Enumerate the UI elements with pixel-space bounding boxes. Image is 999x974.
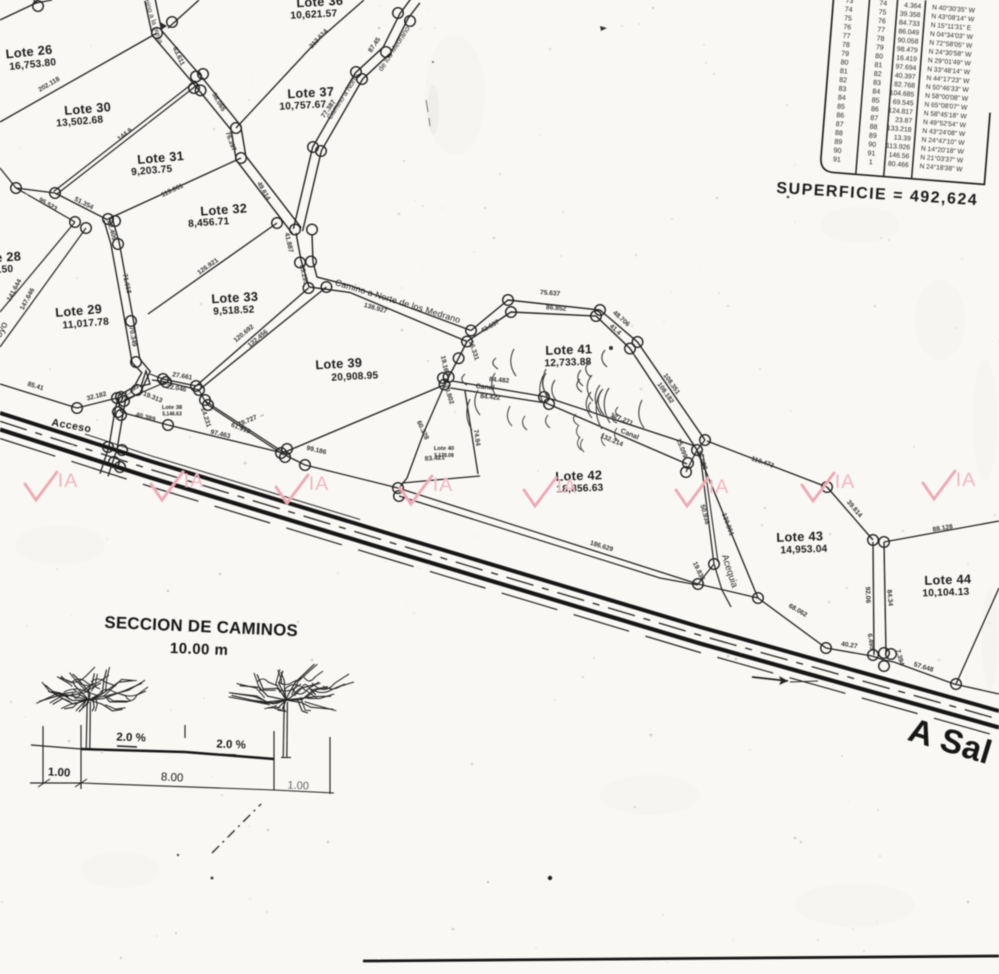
svg-text:68.062: 68.062 — [787, 603, 808, 619]
svg-text:49.614: 49.614 — [255, 181, 271, 202]
svg-text:Lote 38: Lote 38 — [162, 405, 183, 411]
svg-text:79.727 →: 79.727 → — [237, 411, 266, 429]
svg-text:77: 77 — [877, 27, 885, 35]
svg-text:88: 88 — [835, 130, 843, 138]
svg-text:75: 75 — [878, 9, 886, 17]
svg-text:71.018: 71.018 — [121, 273, 132, 295]
svg-text:13.39: 13.39 — [893, 134, 911, 142]
svg-text:40.389: 40.389 — [135, 412, 157, 424]
svg-text:IA: IA — [309, 473, 329, 495]
svg-text:82.768: 82.768 — [894, 81, 915, 90]
svg-text:86: 86 — [871, 106, 879, 114]
svg-text:8,456.71: 8,456.71 — [188, 216, 230, 230]
svg-text:74: 74 — [844, 6, 852, 14]
svg-text:19.313: 19.313 — [142, 391, 164, 405]
svg-text:110.473: 110.473 — [750, 455, 775, 469]
svg-text:97.694: 97.694 — [895, 64, 916, 73]
svg-text:141.644: 141.644 — [6, 278, 24, 303]
svg-text:86: 86 — [836, 112, 844, 120]
svg-text:88: 88 — [869, 124, 877, 132]
svg-text:84: 84 — [838, 95, 846, 103]
svg-text:5,146.63: 5,146.63 — [162, 412, 182, 418]
svg-text:6.495: 6.495 — [866, 633, 876, 651]
svg-text:84: 84 — [872, 88, 880, 96]
svg-text:81: 81 — [840, 68, 848, 76]
svg-text:1: 1 — [869, 159, 874, 166]
svg-text:IA: IA — [709, 476, 729, 498]
svg-text:126.921: 126.921 — [196, 257, 220, 277]
svg-text:130.861: 130.861 — [720, 512, 735, 537]
svg-text:212.614: 212.614 — [308, 28, 330, 50]
svg-text:16.419: 16.419 — [896, 55, 917, 64]
svg-text:186.629: 186.629 — [589, 540, 614, 554]
svg-text:85: 85 — [837, 103, 845, 111]
svg-text:Lote 40: Lote 40 — [434, 446, 454, 452]
svg-text:39.358: 39.358 — [899, 11, 920, 20]
svg-text:83: 83 — [838, 86, 846, 94]
svg-text:Acequia: Acequia — [719, 553, 740, 590]
svg-text:92.06: 92.06 — [864, 587, 872, 604]
svg-text:2.0 %: 2.0 % — [116, 731, 146, 744]
svg-text:104.685: 104.685 — [889, 90, 914, 99]
svg-text:86.049: 86.049 — [898, 28, 919, 37]
svg-text:IA: IA — [433, 474, 453, 496]
svg-text:20,908.95: 20,908.95 — [331, 370, 379, 383]
svg-text:97.463: 97.463 — [210, 429, 232, 440]
svg-text:80: 80 — [875, 53, 883, 61]
svg-text:84.34: 84.34 — [885, 589, 893, 606]
svg-text:76.397: 76.397 — [224, 131, 238, 153]
svg-text:Lote 41: Lote 41 — [545, 341, 592, 358]
svg-text:69.545: 69.545 — [892, 99, 913, 108]
svg-text:Camino a Norte de los Medrano: Camino a Norte de los Medrano — [334, 277, 462, 325]
svg-text:78: 78 — [842, 42, 850, 50]
svg-text:13,502.68: 13,502.68 — [56, 114, 104, 129]
svg-text:2.0 %: 2.0 % — [216, 738, 246, 751]
svg-text:98.479: 98.479 — [897, 46, 918, 55]
svg-text:80.466: 80.466 — [888, 161, 909, 170]
svg-text:Lote 43: Lote 43 — [776, 528, 823, 545]
svg-text:81: 81 — [874, 62, 882, 70]
svg-text:85.41: 85.41 — [27, 381, 45, 393]
svg-text:73: 73 — [845, 0, 853, 5]
svg-text:4.364: 4.364 — [904, 2, 922, 10]
svg-text:82: 82 — [874, 71, 882, 79]
svg-text:40.397: 40.397 — [895, 72, 916, 81]
svg-text:86.852: 86.852 — [546, 304, 567, 312]
svg-text:75: 75 — [844, 15, 852, 23]
svg-text:91: 91 — [867, 150, 875, 158]
svg-text:Lote 37: Lote 37 — [287, 84, 335, 101]
svg-text:16.331: 16.331 — [467, 340, 480, 362]
svg-text:27.661: 27.661 — [172, 371, 193, 381]
svg-text:87: 87 — [835, 121, 843, 129]
svg-text:80: 80 — [840, 59, 848, 67]
svg-text:22.046: 22.046 — [166, 383, 187, 393]
svg-text:90: 90 — [833, 147, 841, 155]
svg-text:84.422: 84.422 — [480, 393, 501, 402]
svg-text:84.733: 84.733 — [899, 19, 920, 28]
svg-text:74: 74 — [879, 0, 887, 8]
svg-text:15.099: 15.099 — [694, 450, 708, 472]
svg-text:133.218: 133.218 — [887, 125, 912, 134]
svg-text:IA: IA — [557, 476, 577, 498]
svg-text:16,766.50: 16,766.50 — [0, 264, 14, 278]
svg-text:12,733.88: 12,733.88 — [544, 357, 592, 370]
svg-text:9,203.75: 9,203.75 — [131, 164, 173, 179]
svg-text:8.00: 8.00 — [161, 771, 184, 784]
svg-text:95.523: 95.523 — [37, 197, 58, 213]
svg-text:87: 87 — [870, 115, 878, 123]
svg-text:IA: IA — [58, 470, 78, 492]
svg-text:89: 89 — [869, 132, 877, 140]
svg-text:15.099: 15.099 — [674, 438, 688, 460]
svg-text:124.817: 124.817 — [888, 107, 913, 116]
svg-text:51.354: 51.354 — [73, 196, 94, 212]
svg-text:10,757.67: 10,757.67 — [279, 99, 327, 112]
svg-text:1.00: 1.00 — [48, 766, 71, 779]
svg-text:146.56: 146.56 — [888, 152, 909, 161]
svg-text:79: 79 — [876, 44, 884, 52]
svg-text:78: 78 — [876, 35, 884, 43]
svg-text:82: 82 — [839, 77, 847, 85]
svg-text:Arroyo: Arroyo — [0, 320, 11, 352]
svg-text:25.295: 25.295 — [298, 264, 309, 286]
svg-text:88.128: 88.128 — [932, 523, 953, 533]
svg-text:57.648: 57.648 — [913, 661, 935, 674]
svg-text:40.27: 40.27 — [841, 641, 859, 651]
svg-text:IA: IA — [184, 470, 204, 492]
svg-text:77: 77 — [842, 33, 850, 41]
svg-text:1.00: 1.00 — [287, 779, 309, 792]
svg-text:19.836: 19.836 — [691, 561, 706, 583]
svg-text:14,953.04: 14,953.04 — [780, 544, 828, 557]
svg-text:99.186: 99.186 — [306, 445, 328, 456]
svg-text:IA: IA — [835, 471, 855, 493]
svg-text:Lote 39: Lote 39 — [315, 355, 363, 372]
svg-text:SUPERFICIE = 492,624: SUPERFICIE = 492,624 — [776, 180, 979, 209]
svg-text:41.887: 41.887 — [283, 232, 294, 254]
svg-text:SECCION DE CAMINOS: SECCION DE CAMINOS — [104, 613, 298, 640]
svg-text:113.926: 113.926 — [886, 143, 911, 152]
svg-text:39.814: 39.814 — [845, 499, 864, 519]
svg-text:10.00 m: 10.00 m — [170, 640, 229, 659]
svg-text:83: 83 — [873, 80, 881, 88]
svg-text:202.118: 202.118 — [37, 76, 61, 94]
svg-text:83.421: 83.421 — [425, 454, 446, 462]
svg-text:IA: IA — [956, 469, 976, 491]
svg-text:23.87: 23.87 — [895, 117, 913, 125]
svg-text:89: 89 — [834, 139, 842, 147]
svg-text:79: 79 — [841, 50, 849, 58]
svg-text:20.802: 20.802 — [442, 384, 455, 406]
svg-text:119.061: 119.061 — [160, 182, 185, 198]
svg-text:Lote 44: Lote 44 — [924, 571, 972, 588]
svg-text:10,104.13: 10,104.13 — [922, 587, 970, 600]
svg-text:76: 76 — [843, 24, 851, 32]
svg-text:10,621.57: 10,621.57 — [290, 8, 338, 21]
svg-text:76: 76 — [878, 18, 886, 26]
svg-text:38.065: 38.065 — [210, 92, 226, 113]
svg-text:9,518.52: 9,518.52 — [213, 304, 255, 317]
svg-text:90.058: 90.058 — [897, 37, 918, 46]
svg-text:85: 85 — [871, 97, 879, 105]
svg-text:90: 90 — [868, 141, 876, 149]
svg-text:91: 91 — [833, 156, 841, 164]
svg-text:75.637: 75.637 — [540, 289, 561, 297]
svg-text:50.938: 50.938 — [698, 504, 710, 526]
